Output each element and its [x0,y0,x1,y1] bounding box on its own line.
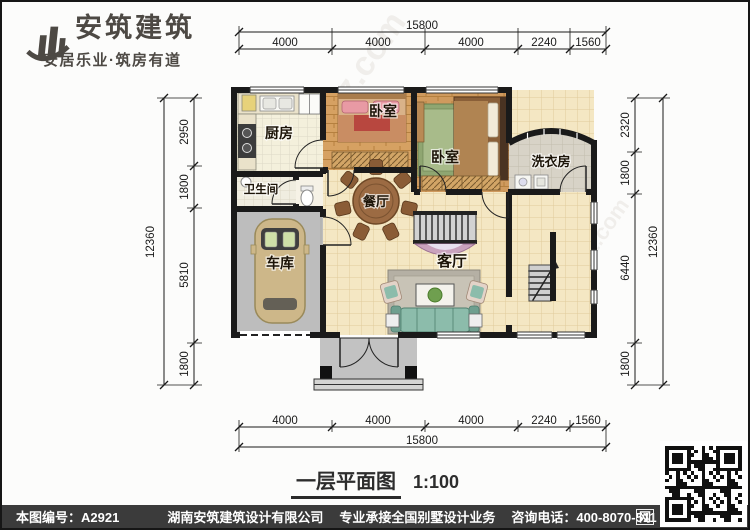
room-label-bedroom2: 卧室 [431,149,459,165]
window [426,87,498,93]
service-text: 专业承接全国别墅设计业务 [339,507,495,526]
dim-left-seg: 1800 [179,174,191,200]
dim-left-seg: 2950 [179,119,191,145]
porch-post [405,366,417,379]
room-label-dining: 餐厅 [362,194,389,209]
brand-tagline: 安居乐业·筑房有道 [43,49,195,70]
window [591,290,597,304]
window [437,332,480,338]
pillow [488,142,498,176]
window [557,332,585,338]
room-label-bedroom1: 卧室 [369,103,397,119]
floor-plan-drawing: hnazjz.com hnazjz.com 安筑建筑 [2,2,750,464]
room-label-living: 客厅 [436,252,467,270]
room-label-kitchen: 厨房 [265,125,293,141]
brand-name: 安筑建筑 [75,14,195,44]
dim-right-seg: 2320 [620,112,632,138]
garage-door-dashed [240,331,310,339]
logo: 安筑建筑 安居乐业·筑房有道 [24,14,195,70]
room-label-laundry: 洗衣房 [531,154,570,169]
title-scale: 1:100 [413,472,459,493]
dim-bottom-seg: 4000 [458,415,484,427]
dim-right-seg: 1800 [620,351,632,377]
porch-post [320,366,332,379]
kitchen-appliance [242,95,256,111]
dim-bottom-seg: 2240 [531,415,557,427]
dim-left-seg: 5810 [179,262,191,288]
title-text: 一层平面图 [291,465,401,499]
dim-top-seg: 1560 [575,37,601,49]
window [591,250,597,270]
pillow [342,101,368,113]
pillow [488,103,498,137]
dim-left-seg: 1800 [179,351,191,377]
dim-top-seg: 4000 [365,37,391,49]
toilet [301,190,313,206]
window [250,87,304,93]
window [591,202,597,224]
dim-top-seg: 4000 [272,37,298,49]
side-table [469,314,482,327]
phone-text: 咨询电话：400-8070-511 [511,507,656,526]
dim-left-total: 12360 [145,226,157,258]
dim-bottom-total: 15800 [406,435,438,447]
dim-right-seg: 6440 [620,255,632,281]
window [338,87,404,93]
dim-right-total: 12360 [648,226,660,258]
side-table [386,314,399,327]
dim-bottom-seg: 4000 [272,415,298,427]
dim-top-seg: 4000 [458,37,484,49]
dim-bottom-seg: 4000 [365,415,391,427]
room-label-bathroom: 卫生间 [244,182,279,196]
car [251,219,309,323]
qr-code [660,441,747,527]
plant [428,288,442,302]
drawing-title: 一层平面图 1:100 [2,465,748,499]
dim-top-total: 15800 [406,20,438,32]
web-badge: 网 [636,509,654,525]
dim-top-seg: 2240 [531,37,557,49]
dim-bottom-seg: 1560 [575,415,601,427]
blueprint-page: 安筑建筑 安居乐业·筑房有道 hnazjz.com hnazj [0,0,750,530]
window [517,332,552,338]
dim-right-seg: 1800 [620,160,632,186]
drawing-number: 本图编号：A2921 [16,507,119,526]
room-label-garage: 车库 [266,255,294,271]
company-name: 湖南安筑建筑设计有限公司 [167,507,323,526]
